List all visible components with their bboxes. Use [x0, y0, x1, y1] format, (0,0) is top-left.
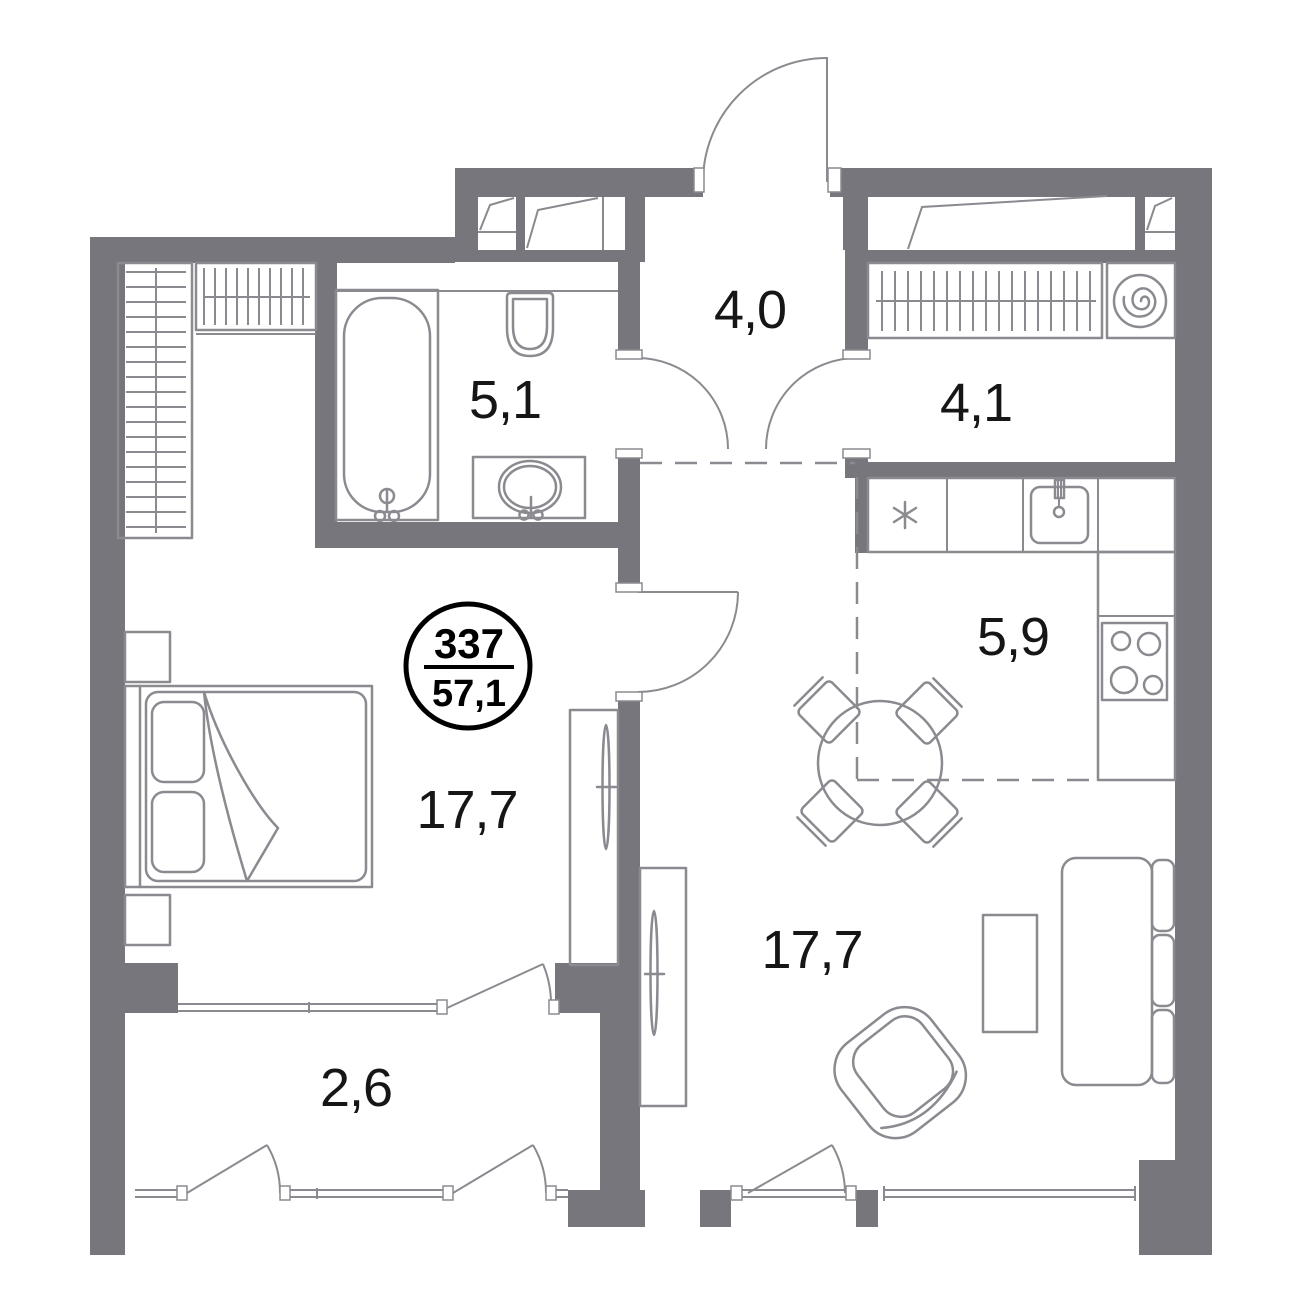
bedroom-wardrobe-icon [570, 710, 618, 965]
fridge-asterisk-icon [894, 502, 916, 528]
dining-chair [795, 778, 864, 847]
washing-machine-icon [1107, 263, 1175, 338]
living-wardrobe-icon [640, 868, 686, 1106]
dining-table-icon [818, 701, 942, 825]
bedroom-closet-rail [196, 263, 316, 334]
label-bedroom: 17,7 [416, 780, 517, 840]
living-room-furniture [821, 858, 1174, 1152]
unit-area: 57,1 [432, 673, 506, 715]
dining-set [792, 675, 964, 849]
sofa-icon [1062, 858, 1174, 1085]
dining-chair [894, 676, 963, 745]
bedroom-balcony-door [447, 964, 551, 1008]
unit-badge: 337 57,1 [406, 604, 530, 728]
entrance-door [703, 57, 827, 182]
storage-door [766, 358, 857, 449]
balcony-window-door-2 [453, 1145, 546, 1193]
nightstand-icon [125, 632, 170, 682]
dining-chair [792, 675, 861, 744]
dining-chair [894, 779, 963, 848]
label-kitchen: 5,9 [977, 607, 1049, 667]
nightstand-icon [125, 895, 170, 945]
stove-icon [1102, 623, 1167, 700]
balcony-window-door-1 [187, 1145, 280, 1193]
bed-icon [125, 686, 372, 887]
label-living-room: 17,7 [761, 920, 862, 980]
label-bathroom: 5,1 [469, 370, 541, 430]
bedroom-closet-shelves [118, 263, 192, 538]
living-balcony-door [748, 1145, 845, 1193]
vanity-sink-icon [473, 457, 585, 520]
bedroom-door [638, 592, 738, 692]
bathroom-door [637, 358, 728, 449]
label-storage: 4,1 [940, 373, 1012, 433]
armchair-icon [821, 993, 980, 1151]
kitchen-sink-icon [1031, 480, 1088, 543]
toilet-icon [507, 293, 553, 356]
floor-plan: 5,1 4,0 4,1 5,9 17,7 17,7 2,6 337 57,1 [0, 0, 1300, 1300]
unit-number: 337 [434, 620, 504, 667]
bathtub-icon [336, 290, 438, 521]
label-hallway: 4,0 [714, 280, 786, 340]
label-balcony: 2,6 [320, 1058, 392, 1118]
bedroom-furniture [125, 632, 372, 945]
storage-closet-rail [868, 263, 1102, 338]
coffee-table-icon [983, 915, 1037, 1032]
